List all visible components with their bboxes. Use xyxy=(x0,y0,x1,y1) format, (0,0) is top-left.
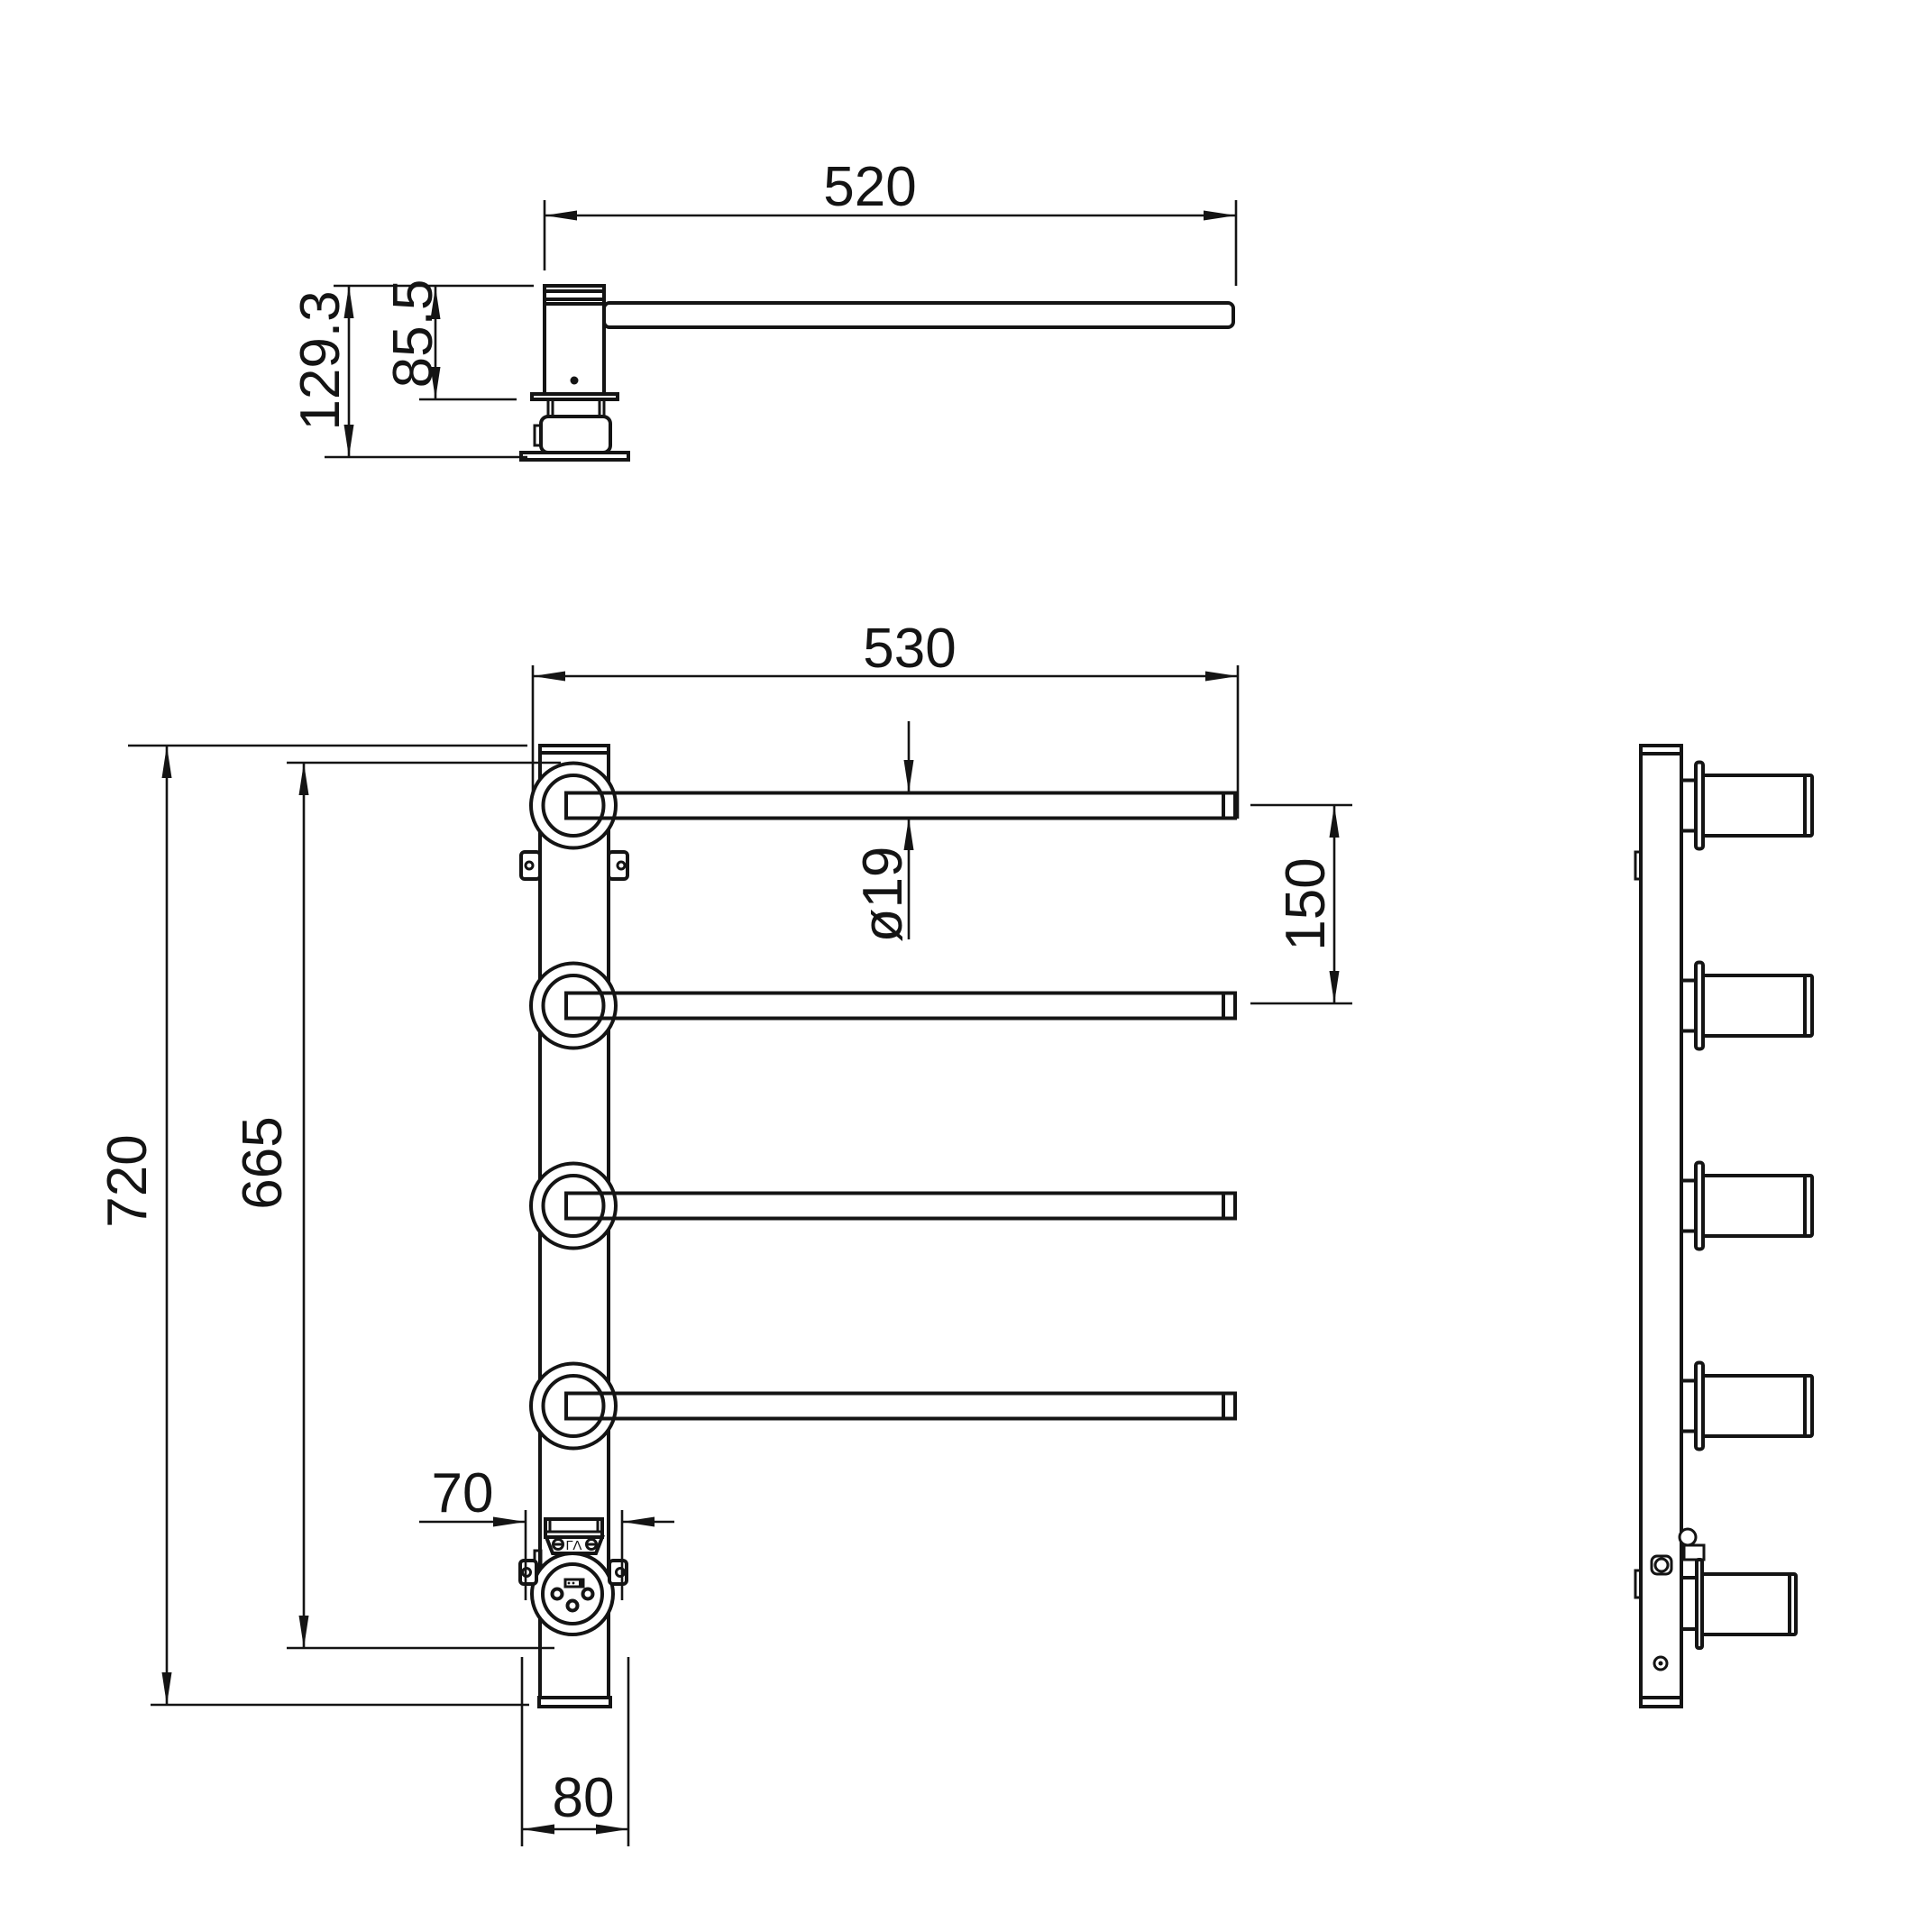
socket-marking: ΓΛ xyxy=(566,1538,583,1553)
top-view-flange xyxy=(532,394,618,399)
dim-rail-length: 530 xyxy=(533,618,1238,819)
dim-base-width: 80 xyxy=(522,1657,628,1846)
dim-body-height-label: 85.5 xyxy=(382,279,444,389)
side-cable-hook xyxy=(1680,1529,1696,1545)
dim-rail-spacing-label: 150 xyxy=(1275,857,1337,950)
side-plate xyxy=(1641,746,1681,1707)
dim-tube-diameter: ø19 xyxy=(852,721,914,942)
dim-rail-length-label: 530 xyxy=(863,618,956,680)
front-post-top-cap xyxy=(540,746,609,753)
dim-arm-length: 520 xyxy=(545,156,1236,286)
side-module-bracket xyxy=(1684,1545,1704,1560)
dim-overall-height-top-label: 129.3 xyxy=(289,290,352,430)
top-view-arm xyxy=(604,303,1233,327)
dim-arm-length-label: 520 xyxy=(823,156,916,218)
towel-rack-drawing: 520 129.3 85.5 xyxy=(0,0,1932,1932)
dim-overall-height-front: 720 xyxy=(96,746,529,1705)
front-post-bottom-cap xyxy=(539,1698,610,1707)
front-power-socket: ΓΛ xyxy=(520,1519,627,1634)
technical-drawing-sheet: 520 129.3 85.5 xyxy=(0,0,1932,1932)
top-view: 520 129.3 85.5 xyxy=(289,156,1236,460)
front-view: ΓΛ 530 xyxy=(96,618,1352,1846)
dim-pivot-span: 665 xyxy=(232,763,561,1648)
side-view xyxy=(1635,746,1812,1707)
dim-base-width-label: 80 xyxy=(553,1767,615,1829)
side-arm-hubs xyxy=(1681,763,1812,1450)
dim-body-height: 85.5 xyxy=(382,279,517,399)
socket-cover xyxy=(545,1519,602,1537)
front-mount-ears xyxy=(521,852,627,879)
dim-overall-height-front-label: 720 xyxy=(96,1134,159,1227)
top-view-base-plate xyxy=(521,453,628,460)
top-view-pin-hole xyxy=(571,377,579,385)
dim-tube-diameter-label: ø19 xyxy=(852,847,914,943)
dim-rail-spacing: 150 xyxy=(1250,805,1352,1003)
side-power-module xyxy=(1680,1529,1796,1648)
top-view-clip xyxy=(535,426,541,445)
top-view-housing xyxy=(541,417,610,453)
dim-pivot-span-label: 665 xyxy=(232,1116,294,1209)
dim-cover-width-label: 70 xyxy=(432,1462,494,1525)
front-pivot-rings xyxy=(531,764,616,1449)
